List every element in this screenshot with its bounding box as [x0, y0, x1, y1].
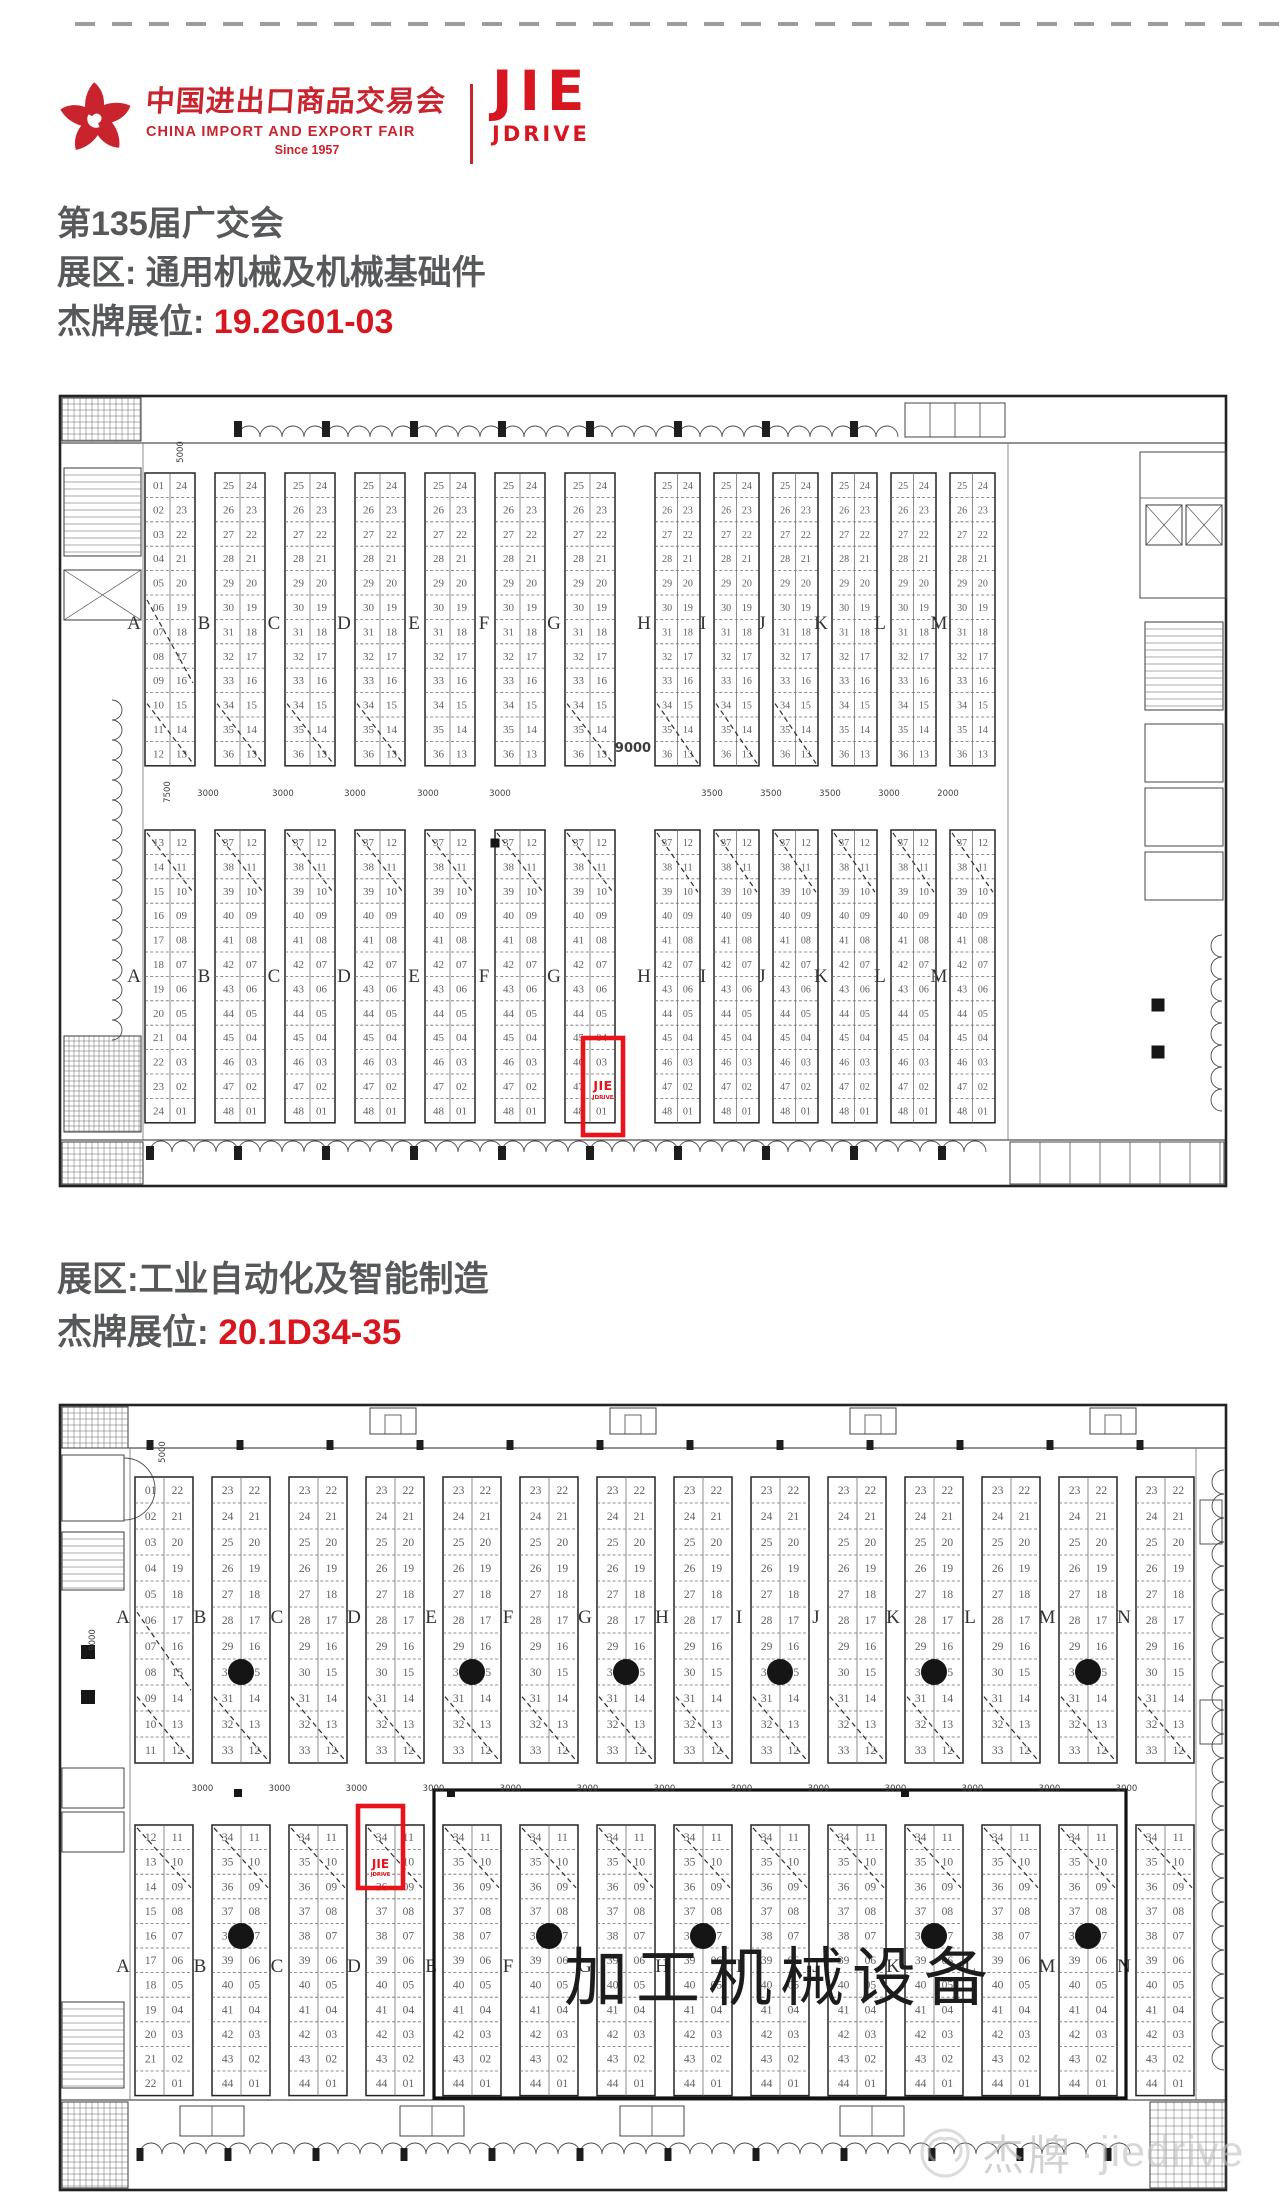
svg-text:23: 23 [978, 505, 988, 516]
fair-logo-text: 中国进出口商品交易会 CHINA IMPORT AND EXPORT FAIR … [146, 70, 468, 157]
svg-text:36: 36 [838, 1881, 850, 1893]
svg-text:26: 26 [573, 504, 585, 516]
svg-text:08: 08 [634, 1906, 646, 1918]
svg-text:34: 34 [839, 701, 849, 712]
svg-text:12: 12 [176, 837, 187, 849]
svg-text:23: 23 [530, 1485, 542, 1497]
svg-text:37: 37 [838, 1906, 850, 1918]
svg-text:06: 06 [919, 984, 929, 995]
svg-text:31: 31 [376, 1693, 388, 1705]
svg-text:38: 38 [898, 862, 908, 873]
svg-text:01: 01 [386, 1105, 397, 1117]
svg-text:22: 22 [403, 1485, 415, 1497]
svg-text:36: 36 [223, 748, 235, 760]
svg-text:05: 05 [1173, 1980, 1185, 1992]
svg-text:3000: 3000 [417, 789, 439, 799]
svg-text:47: 47 [662, 1082, 672, 1093]
svg-text:28: 28 [915, 1615, 927, 1627]
svg-text:32: 32 [662, 652, 672, 663]
svg-text:04: 04 [145, 1563, 157, 1575]
svg-text:11: 11 [919, 862, 929, 873]
svg-text:29: 29 [293, 578, 305, 590]
svg-text:08: 08 [942, 1906, 954, 1918]
svg-text:34: 34 [453, 1832, 465, 1844]
svg-text:36: 36 [721, 749, 731, 760]
header-logos: 中国进出口商品交易会 CHINA IMPORT AND EXPORT FAIR … [50, 70, 468, 168]
svg-text:15: 15 [865, 1667, 877, 1679]
svg-text:19: 19 [865, 1563, 877, 1575]
svg-text:22: 22 [526, 529, 537, 541]
svg-text:36: 36 [957, 749, 967, 760]
svg-text:17: 17 [316, 651, 328, 663]
svg-text:5000: 5000 [158, 1441, 168, 1463]
svg-text:20: 20 [326, 1537, 338, 1549]
svg-text:22: 22 [172, 1485, 184, 1497]
svg-text:11: 11 [326, 1832, 337, 1844]
svg-text:38: 38 [453, 1931, 465, 1943]
svg-text:09: 09 [634, 1881, 646, 1893]
svg-text:21: 21 [860, 554, 870, 565]
svg-text:46: 46 [957, 1058, 967, 1069]
svg-text:02: 02 [801, 1082, 811, 1093]
svg-text:20: 20 [978, 579, 988, 590]
svg-text:47: 47 [503, 1081, 515, 1093]
svg-text:34: 34 [662, 701, 672, 712]
svg-text:39: 39 [662, 887, 672, 898]
svg-text:35: 35 [684, 1857, 696, 1869]
svg-text:02: 02 [1173, 2054, 1185, 2066]
svg-text:15: 15 [596, 700, 608, 712]
svg-text:45: 45 [957, 1033, 967, 1044]
svg-text:26: 26 [376, 1563, 388, 1575]
svg-text:31: 31 [1069, 1693, 1081, 1705]
svg-text:12: 12 [480, 1745, 492, 1757]
svg-text:04: 04 [316, 1032, 328, 1044]
svg-text:08: 08 [145, 1667, 157, 1679]
svg-text:44: 44 [838, 2078, 850, 2090]
svg-text:36: 36 [662, 749, 672, 760]
jie-jdrive-logo: JIE JDRIVE [492, 64, 592, 145]
svg-text:24: 24 [299, 1511, 311, 1523]
svg-text:26: 26 [1069, 1563, 1081, 1575]
svg-text:43: 43 [573, 983, 585, 995]
svg-text:25: 25 [721, 481, 731, 492]
svg-text:44: 44 [573, 1008, 585, 1020]
svg-text:22: 22 [596, 529, 607, 541]
svg-text:13: 13 [683, 749, 693, 760]
svg-text:15: 15 [1019, 1667, 1031, 1679]
svg-text:01: 01 [316, 1105, 327, 1117]
svg-text:44: 44 [957, 1009, 967, 1020]
svg-text:26: 26 [839, 505, 849, 516]
svg-text:33: 33 [503, 675, 515, 687]
svg-text:04: 04 [249, 2004, 261, 2016]
svg-text:44: 44 [299, 2078, 311, 2090]
svg-text:44: 44 [223, 1008, 235, 1020]
svg-text:15: 15 [316, 700, 328, 712]
svg-text:25: 25 [607, 1537, 619, 1549]
svg-text:36: 36 [761, 1881, 773, 1893]
svg-text:46: 46 [780, 1058, 790, 1069]
svg-text:37: 37 [915, 1906, 927, 1918]
svg-text:35: 35 [839, 725, 849, 736]
svg-text:40: 40 [839, 911, 849, 922]
svg-text:01: 01 [145, 1485, 157, 1497]
svg-text:26: 26 [223, 504, 235, 516]
svg-text:22: 22 [246, 529, 257, 541]
svg-text:23: 23 [299, 1485, 311, 1497]
svg-text:43: 43 [761, 2054, 773, 2066]
svg-text:35: 35 [957, 725, 967, 736]
svg-text:37: 37 [299, 1906, 311, 1918]
svg-text:05: 05 [1019, 1980, 1031, 1992]
svg-text:JIE: JIE [371, 1857, 389, 1871]
svg-text:37: 37 [607, 1906, 619, 1918]
svg-text:13: 13 [634, 1719, 646, 1731]
svg-text:36: 36 [839, 749, 849, 760]
svg-text:26: 26 [761, 1563, 773, 1575]
svg-text:36: 36 [780, 749, 790, 760]
svg-text:14: 14 [172, 1693, 184, 1705]
svg-text:24: 24 [153, 1105, 165, 1117]
svg-text:31: 31 [898, 627, 908, 638]
svg-text:05: 05 [919, 1009, 929, 1020]
svg-text:21: 21 [153, 1032, 164, 1044]
svg-text:11: 11 [172, 1832, 183, 1844]
section2-heading: 展区:工业自动化及智能制造 杰牌展位: 20.1D34-35 [57, 1253, 489, 1359]
svg-text:33: 33 [838, 1745, 850, 1757]
svg-text:34: 34 [1069, 1832, 1081, 1844]
svg-text:04: 04 [326, 2004, 338, 2016]
svg-text:08: 08 [153, 651, 165, 663]
svg-text:29: 29 [662, 579, 672, 590]
svg-text:05: 05 [860, 1009, 870, 1020]
svg-text:13: 13 [711, 1719, 723, 1731]
svg-text:01: 01 [456, 1105, 467, 1117]
section2-booth: 杰牌展位: 20.1D34-35 [57, 1306, 489, 1359]
svg-text:40: 40 [957, 911, 967, 922]
svg-text:17: 17 [942, 1615, 954, 1627]
svg-text:17: 17 [683, 652, 693, 663]
svg-text:48: 48 [503, 1105, 515, 1117]
svg-text:B: B [198, 966, 211, 987]
svg-text:25: 25 [433, 480, 445, 492]
svg-text:18: 18 [634, 1589, 646, 1601]
svg-text:16: 16 [634, 1641, 646, 1653]
svg-text:08: 08 [1096, 1906, 1108, 1918]
svg-text:29: 29 [838, 1641, 850, 1653]
svg-text:16: 16 [249, 1641, 261, 1653]
svg-text:08: 08 [456, 935, 468, 947]
svg-text:27: 27 [503, 529, 515, 541]
svg-text:07: 07 [316, 959, 328, 971]
svg-text:15: 15 [326, 1667, 338, 1679]
svg-text:04: 04 [683, 1033, 693, 1044]
svg-text:26: 26 [838, 1563, 850, 1575]
svg-text:20: 20 [480, 1537, 492, 1549]
svg-text:16: 16 [1019, 1641, 1031, 1653]
svg-text:43: 43 [780, 984, 790, 995]
svg-text:25: 25 [898, 481, 908, 492]
svg-text:B: B [198, 613, 211, 634]
svg-text:10: 10 [1173, 1857, 1185, 1869]
svg-text:23: 23 [153, 1081, 165, 1093]
svg-text:06: 06 [801, 984, 811, 995]
svg-text:39: 39 [530, 1955, 542, 1967]
svg-text:40: 40 [222, 1980, 234, 1992]
svg-text:30: 30 [530, 1667, 542, 1679]
svg-text:3000: 3000 [192, 1784, 214, 1794]
svg-text:35: 35 [915, 1857, 927, 1869]
svg-text:39: 39 [1069, 1955, 1081, 1967]
section1-booth: 杰牌展位: 19.2G01-03 [57, 298, 486, 347]
brand-jie-text: JIE [492, 64, 592, 119]
svg-text:18: 18 [172, 1589, 184, 1601]
svg-text:25: 25 [299, 1537, 311, 1549]
svg-text:27: 27 [376, 1589, 388, 1601]
svg-text:29: 29 [721, 579, 731, 590]
svg-text:02: 02 [683, 1082, 693, 1093]
svg-text:08: 08 [978, 936, 988, 947]
svg-text:3000: 3000 [344, 789, 366, 799]
svg-text:17: 17 [788, 1615, 800, 1627]
svg-text:19: 19 [480, 1563, 492, 1575]
svg-text:2000: 2000 [937, 789, 959, 799]
svg-text:20: 20 [403, 1537, 415, 1549]
svg-text:21: 21 [1096, 1511, 1108, 1523]
svg-text:36: 36 [433, 748, 445, 760]
svg-text:29: 29 [684, 1641, 696, 1653]
svg-text:07: 07 [742, 960, 752, 971]
svg-text:09: 09 [557, 1881, 569, 1893]
svg-text:18: 18 [865, 1589, 877, 1601]
svg-text:45: 45 [898, 1033, 908, 1044]
svg-text:47: 47 [721, 1082, 731, 1093]
svg-text:45: 45 [433, 1032, 445, 1044]
svg-text:06: 06 [249, 1955, 261, 1967]
svg-text:31: 31 [363, 626, 374, 638]
svg-text:07: 07 [326, 1931, 338, 1943]
svg-text:36: 36 [607, 1881, 619, 1893]
svg-text:12: 12 [634, 1745, 646, 1757]
svg-text:01: 01 [176, 1105, 187, 1117]
svg-text:43: 43 [957, 984, 967, 995]
svg-text:28: 28 [992, 1615, 1004, 1627]
svg-text:40: 40 [376, 1980, 388, 1992]
svg-text:D: D [347, 1956, 361, 1977]
svg-text:20: 20 [801, 579, 811, 590]
svg-text:26: 26 [898, 505, 908, 516]
svg-text:11: 11 [1019, 1832, 1030, 1844]
svg-text:16: 16 [403, 1641, 415, 1653]
svg-text:21: 21 [711, 1511, 723, 1523]
svg-text:9000: 9000 [88, 1629, 98, 1651]
svg-text:07: 07 [526, 959, 538, 971]
svg-text:03: 03 [456, 1057, 468, 1069]
svg-text:19: 19 [176, 602, 188, 614]
svg-text:11: 11 [865, 1832, 876, 1844]
svg-text:44: 44 [1069, 2078, 1081, 2090]
svg-text:14: 14 [249, 1693, 261, 1705]
svg-text:31: 31 [684, 1693, 696, 1705]
svg-text:03: 03 [246, 1057, 258, 1069]
svg-text:13: 13 [1096, 1719, 1108, 1731]
svg-text:31: 31 [957, 627, 967, 638]
canton-fair-flower-icon [50, 70, 142, 168]
svg-text:C: C [271, 1956, 284, 1977]
svg-text:12: 12 [326, 1745, 338, 1757]
svg-text:19: 19 [456, 602, 468, 614]
svg-text:35: 35 [1146, 1857, 1158, 1869]
svg-text:26: 26 [607, 1563, 619, 1575]
svg-text:27: 27 [662, 530, 672, 541]
svg-text:14: 14 [145, 1881, 157, 1893]
svg-text:39: 39 [223, 886, 235, 898]
svg-text:02: 02 [942, 2054, 954, 2066]
svg-text:06: 06 [316, 983, 328, 995]
svg-text:42: 42 [992, 2029, 1004, 2041]
svg-text:11: 11 [249, 1832, 260, 1844]
svg-text:13: 13 [326, 1719, 338, 1731]
svg-text:34: 34 [721, 701, 731, 712]
svg-text:3000: 3000 [197, 789, 219, 799]
svg-text:09: 09 [1096, 1881, 1108, 1893]
svg-text:29: 29 [1146, 1641, 1158, 1653]
svg-text:18: 18 [456, 626, 468, 638]
svg-text:01: 01 [480, 2078, 492, 2090]
svg-text:08: 08 [526, 935, 538, 947]
svg-text:26: 26 [222, 1563, 234, 1575]
svg-text:02: 02 [480, 2054, 492, 2066]
svg-text:12: 12 [919, 838, 929, 849]
svg-text:40: 40 [433, 910, 445, 922]
svg-text:11: 11 [480, 1832, 491, 1844]
svg-text:32: 32 [780, 652, 790, 663]
svg-text:29: 29 [433, 578, 445, 590]
svg-text:25: 25 [363, 480, 375, 492]
svg-text:01: 01 [249, 2078, 261, 2090]
svg-text:39: 39 [453, 1955, 465, 1967]
svg-text:36: 36 [453, 1881, 465, 1893]
svg-text:43: 43 [293, 983, 305, 995]
svg-text:11: 11 [634, 1832, 645, 1844]
svg-text:12: 12 [172, 1745, 184, 1757]
svg-text:27: 27 [898, 530, 908, 541]
svg-text:H: H [655, 1607, 669, 1628]
svg-text:37: 37 [1146, 1906, 1158, 1918]
svg-text:28: 28 [721, 554, 731, 565]
svg-text:30: 30 [1146, 1667, 1158, 1679]
svg-text:22: 22 [942, 1485, 954, 1497]
svg-text:42: 42 [607, 2029, 619, 2041]
svg-text:43: 43 [503, 983, 515, 995]
svg-text:29: 29 [761, 1641, 773, 1653]
svg-text:12: 12 [860, 838, 870, 849]
svg-text:30: 30 [293, 602, 305, 614]
svg-text:03: 03 [860, 1058, 870, 1069]
svg-text:43: 43 [898, 984, 908, 995]
svg-text:41: 41 [453, 2004, 465, 2016]
svg-text:40: 40 [721, 911, 731, 922]
svg-text:22: 22 [145, 2078, 157, 2090]
svg-text:47: 47 [898, 1082, 908, 1093]
svg-text:09: 09 [865, 1881, 877, 1893]
svg-text:42: 42 [222, 2029, 234, 2041]
svg-text:34: 34 [898, 701, 908, 712]
svg-text:11: 11 [801, 862, 811, 873]
svg-text:12: 12 [711, 1745, 723, 1757]
svg-text:46: 46 [293, 1057, 305, 1069]
svg-text:H: H [637, 966, 651, 987]
svg-text:42: 42 [376, 2029, 388, 2041]
svg-text:10: 10 [1019, 1857, 1031, 1869]
svg-text:01: 01 [860, 1106, 870, 1117]
svg-text:18: 18 [145, 1980, 157, 1992]
svg-text:44: 44 [839, 1009, 849, 1020]
svg-text:32: 32 [1146, 1719, 1158, 1731]
svg-text:11: 11 [526, 861, 537, 873]
svg-text:32: 32 [898, 652, 908, 663]
svg-text:04: 04 [860, 1033, 870, 1044]
svg-text:08: 08 [865, 1906, 877, 1918]
svg-text:43: 43 [453, 2054, 465, 2066]
svg-text:28: 28 [684, 1615, 696, 1627]
svg-text:34: 34 [376, 1832, 388, 1844]
svg-text:29: 29 [453, 1641, 465, 1653]
svg-text:22: 22 [326, 1485, 338, 1497]
svg-text:47: 47 [780, 1082, 790, 1093]
svg-text:27: 27 [839, 530, 849, 541]
svg-text:02: 02 [176, 1081, 187, 1093]
svg-text:06: 06 [526, 983, 538, 995]
svg-text:35: 35 [721, 725, 731, 736]
svg-text:16: 16 [865, 1641, 877, 1653]
svg-text:24: 24 [386, 480, 398, 492]
svg-text:M: M [931, 613, 948, 634]
svg-text:43: 43 [992, 2054, 1004, 2066]
svg-text:41: 41 [573, 935, 584, 947]
svg-text:25: 25 [503, 480, 515, 492]
svg-text:34: 34 [761, 1832, 773, 1844]
svg-text:F: F [503, 1956, 514, 1977]
svg-text:13: 13 [1019, 1719, 1031, 1731]
svg-text:16: 16 [596, 675, 608, 687]
svg-text:31: 31 [607, 1693, 619, 1705]
svg-text:31: 31 [222, 1693, 234, 1705]
svg-text:12: 12 [742, 838, 752, 849]
svg-text:01: 01 [919, 1106, 929, 1117]
svg-text:04: 04 [1173, 2004, 1185, 2016]
svg-text:28: 28 [503, 553, 515, 565]
svg-text:38: 38 [1146, 1931, 1158, 1943]
svg-text:38: 38 [780, 862, 790, 873]
svg-text:28: 28 [453, 1615, 465, 1627]
svg-text:12: 12 [246, 837, 257, 849]
svg-text:18: 18 [386, 626, 398, 638]
svg-text:04: 04 [246, 1032, 258, 1044]
svg-text:08: 08 [596, 935, 608, 947]
svg-text:16: 16 [801, 676, 811, 687]
svg-text:33: 33 [761, 1745, 773, 1757]
svg-text:09: 09 [711, 1881, 723, 1893]
svg-text:25: 25 [376, 1537, 388, 1549]
svg-text:06: 06 [596, 983, 608, 995]
svg-text:22: 22 [788, 1485, 800, 1497]
svg-text:18: 18 [711, 1589, 723, 1601]
svg-text:31: 31 [915, 1693, 927, 1705]
svg-text:02: 02 [557, 2054, 569, 2066]
svg-text:25: 25 [1069, 1537, 1081, 1549]
